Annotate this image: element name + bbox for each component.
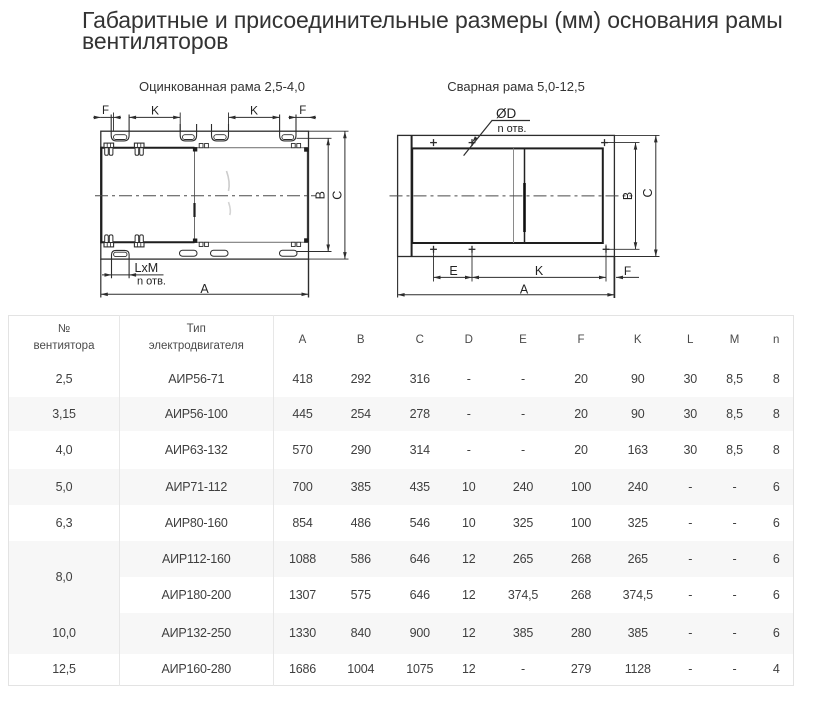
svg-text:K: K	[151, 104, 159, 118]
svg-text:n отв.: n отв.	[137, 275, 166, 287]
svg-text:LxM: LxM	[135, 261, 159, 275]
svg-text:C: C	[331, 191, 345, 200]
svg-text:E: E	[449, 264, 457, 278]
svg-text:F: F	[624, 264, 631, 278]
svg-text:F: F	[299, 105, 306, 117]
svg-text:n отв.: n отв.	[498, 123, 527, 135]
svg-text:A: A	[520, 283, 529, 297]
svg-text:ØD: ØD	[496, 106, 517, 121]
svg-text:A: A	[200, 282, 209, 296]
svg-text:F: F	[102, 105, 109, 117]
svg-text:K: K	[535, 264, 544, 278]
svg-text:K: K	[250, 104, 258, 118]
svg-text:B: B	[314, 191, 328, 199]
svg-text:B: B	[621, 192, 635, 200]
svg-text:C: C	[641, 188, 655, 197]
